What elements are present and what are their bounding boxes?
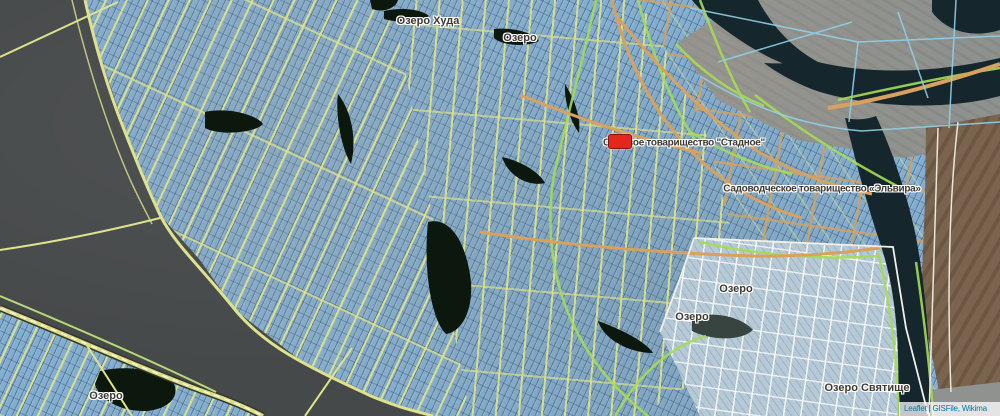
attribution-sources-link[interactable]: GISFile, Wikima bbox=[933, 404, 987, 413]
attribution-bar: Leaflet|GISFile, Wikima bbox=[899, 402, 1000, 416]
attribution-leaflet-link[interactable]: Leaflet bbox=[904, 404, 927, 413]
map-canvas[interactable]: Озеро Худа Озеро Садовое товарищество "С… bbox=[0, 0, 1000, 416]
map-marker[interactable] bbox=[608, 134, 632, 149]
attribution-separator: | bbox=[929, 404, 931, 413]
